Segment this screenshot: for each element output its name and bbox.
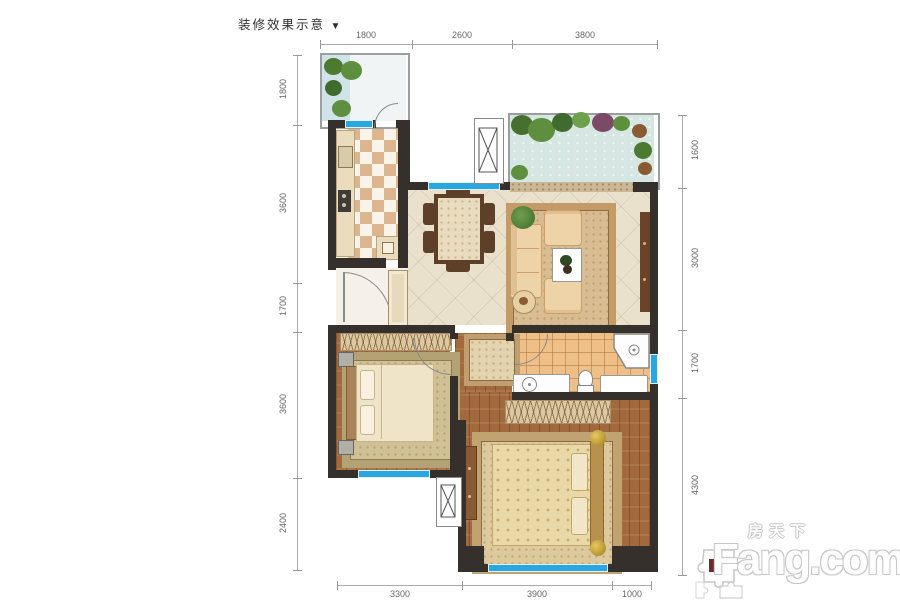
wall-living-bottom-right	[512, 325, 658, 333]
master-wardrobe	[505, 400, 611, 424]
tv-cabinet	[640, 212, 650, 312]
dim-tick	[293, 125, 302, 126]
dim-label: 1800	[346, 30, 386, 40]
dim-label: 3300	[375, 589, 425, 599]
kitchen-sink-unit	[376, 236, 400, 260]
pillow	[571, 453, 588, 491]
wall-bedroom2-divider	[450, 376, 458, 478]
bedroom2-bed	[356, 364, 434, 442]
bathroom-counter	[600, 375, 648, 393]
shoe-cabinet	[388, 270, 408, 326]
plant-icon	[341, 61, 362, 80]
page-title-text: 装修效果示意	[238, 18, 325, 32]
armchair	[544, 278, 582, 314]
dim-tick	[678, 575, 687, 576]
armchair	[544, 210, 582, 246]
wall-living-bottom-left	[328, 325, 455, 333]
duct-shaft	[436, 477, 462, 527]
dim-tick	[512, 40, 513, 49]
sink-basin	[382, 242, 394, 254]
dining-table-top	[438, 198, 480, 260]
dim-label: 1700	[278, 281, 288, 331]
wall-void-pillar	[398, 120, 410, 190]
nightstand	[338, 440, 354, 455]
dim-label: 2600	[442, 30, 482, 40]
dim-tick	[678, 330, 687, 331]
dim-tick	[462, 581, 463, 590]
dim-tick	[678, 188, 687, 189]
bathroom-window	[650, 354, 658, 384]
drain-dot	[528, 383, 531, 386]
bedpost-ball-icon	[590, 430, 606, 446]
dim-tick	[293, 570, 302, 571]
dim-tick	[678, 398, 687, 399]
plant-icon	[332, 100, 351, 117]
dim-label: 1800	[278, 64, 288, 114]
plant-icon	[572, 112, 590, 128]
dim-label: 1700	[690, 338, 700, 388]
potted-plant-icon	[511, 206, 535, 229]
burner-dot	[342, 203, 346, 207]
wall-garden-bottom	[510, 182, 633, 192]
sofa	[510, 224, 542, 298]
plant-pot-icon	[638, 162, 652, 175]
dim-label: 1600	[690, 125, 700, 175]
plant-icon	[634, 142, 652, 159]
dim-tick	[678, 115, 687, 116]
cabinet-knob	[643, 242, 646, 245]
plant-icon	[511, 165, 528, 180]
dim-tick	[293, 283, 302, 284]
wall-bedroom2-left	[328, 325, 336, 478]
pillow	[360, 405, 375, 435]
dim-label: 4300	[690, 460, 700, 510]
dim-label: 3900	[512, 589, 562, 599]
shower-stall-icon	[613, 333, 650, 369]
cabinet-knob	[643, 278, 646, 281]
dim-tick	[412, 40, 413, 49]
shaft-x-icon	[478, 127, 498, 173]
entry-door-leaf	[343, 272, 345, 322]
plant-pot-icon	[632, 124, 647, 138]
triangle-down-icon: ▼	[331, 21, 343, 32]
wall-bath-left-pillar	[506, 333, 514, 341]
wall-master-bay-right	[612, 546, 658, 568]
watermark-en-text: Fang.com	[712, 535, 900, 585]
wall-kitchen-bottom	[336, 258, 386, 268]
dim-tick	[657, 40, 658, 49]
side-table-item	[519, 297, 528, 305]
plant-icon	[324, 58, 343, 75]
dim-label: 1000	[607, 589, 657, 599]
dim-label: 3600	[278, 178, 288, 228]
hallway-rug	[464, 334, 520, 386]
washbasin-icon	[522, 377, 537, 392]
dresser-knob	[468, 495, 471, 498]
table-plant-icon	[563, 265, 572, 274]
wall-kitchen-left	[328, 120, 336, 270]
master-window	[488, 564, 608, 572]
dim-label: 3600	[278, 379, 288, 429]
side-table	[512, 290, 536, 314]
duct-shaft	[474, 118, 504, 184]
dim-tick	[293, 332, 302, 333]
shaft-x-icon	[440, 484, 456, 518]
bedpost-ball-icon	[590, 540, 606, 556]
dim-line	[320, 44, 658, 45]
dresser-knob	[468, 467, 471, 470]
dim-line	[682, 115, 683, 575]
wall-master-right	[650, 392, 658, 572]
dim-line	[337, 585, 652, 586]
microwave-icon	[338, 146, 353, 168]
master-bed	[492, 444, 594, 546]
burner-dot	[342, 194, 346, 198]
master-headboard	[590, 442, 604, 548]
dim-label: 3000	[690, 233, 700, 283]
wall-living-right	[650, 190, 658, 325]
sofa-armrest	[511, 225, 517, 295]
dim-label: 3800	[565, 30, 605, 40]
stove-icon	[338, 190, 351, 212]
sofa-cushion-line	[517, 272, 539, 273]
dining-table	[434, 194, 484, 264]
plant-icon	[552, 113, 573, 132]
dim-tick	[320, 40, 321, 49]
dim-tick	[337, 581, 338, 590]
dim-line	[297, 55, 298, 570]
dim-label: 2400	[278, 498, 288, 548]
kitchen-window	[345, 120, 373, 128]
wall-master-bay-left	[458, 546, 484, 568]
quilt-fold-line	[381, 365, 382, 439]
dim-tick	[293, 478, 302, 479]
page-title: 装修效果示意 ▼	[238, 14, 342, 33]
pillow	[571, 497, 588, 535]
sofa-cushion-line	[517, 248, 539, 249]
dining-chair	[483, 231, 495, 253]
floorplan-page: 装修效果示意 ▼	[0, 0, 900, 600]
dining-chair	[483, 203, 495, 225]
plant-icon	[325, 80, 342, 96]
plant-icon	[528, 118, 555, 142]
plant-purple-icon	[592, 113, 614, 132]
plant-icon	[613, 116, 630, 131]
pillow	[360, 370, 375, 400]
nightstand	[338, 352, 354, 367]
wall-bedroom2-divider-top	[450, 333, 458, 339]
bedroom2-window	[358, 470, 430, 478]
dim-tick	[293, 55, 302, 56]
wall-bath-bottom	[512, 392, 658, 400]
coffee-table	[552, 248, 582, 282]
